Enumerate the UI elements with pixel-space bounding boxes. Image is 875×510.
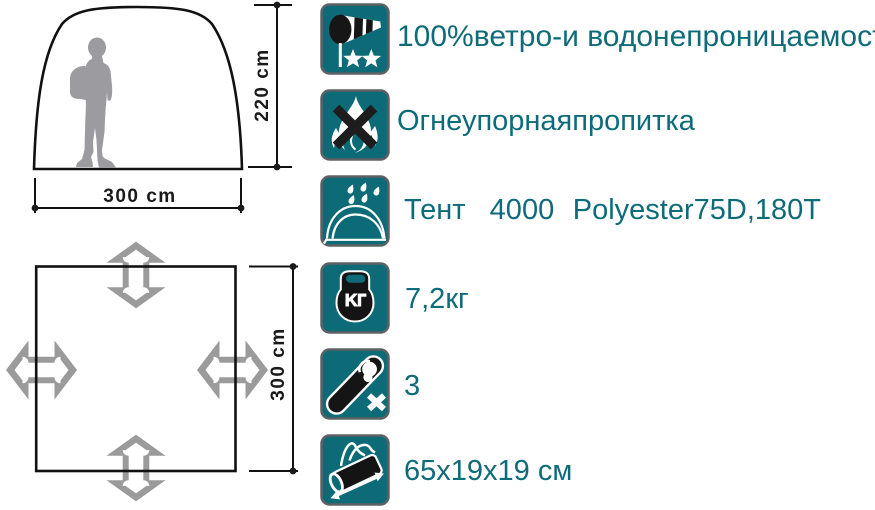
svg-text:300 cm: 300 cm	[103, 186, 176, 207]
svg-text:300 cm: 300 cm	[268, 327, 289, 400]
svg-text:220 cm: 220 cm	[252, 48, 273, 121]
